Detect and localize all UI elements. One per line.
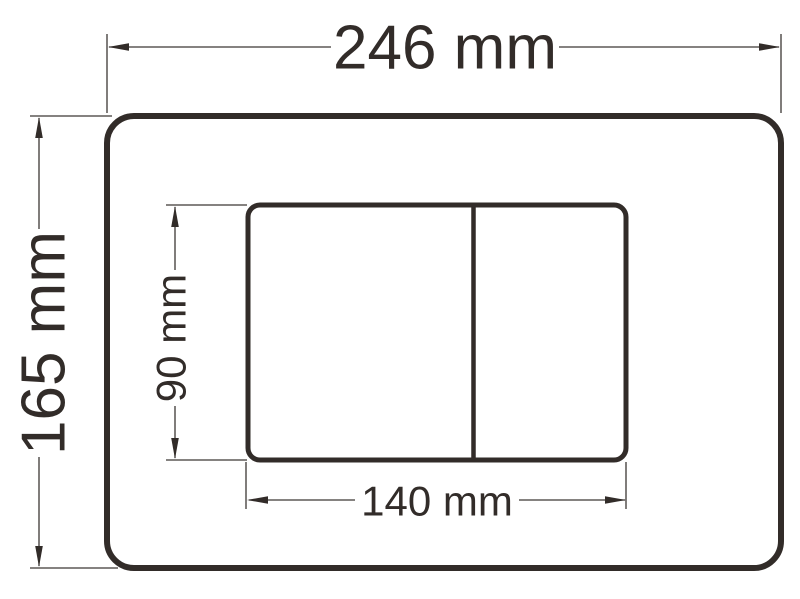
dimension-button-panel-width: 140 mm [246,462,626,525]
plate-height-label: 165 mm [10,231,79,455]
button-panel-outline [248,205,626,460]
dimension-plate-width: 246 mm [107,14,781,114]
arrowhead-up-icon [35,117,43,138]
technical-drawing: 246 mm 165 mm 90 mm [0,0,800,599]
arrowhead-left-icon [108,43,129,51]
dimension-button-panel-height: 90 mm [148,205,248,460]
plate-width-label: 246 mm [333,14,557,83]
arrowhead-down-icon [171,438,179,459]
button-panel-width-label: 140 mm [361,478,513,525]
drawing-canvas: 246 mm 165 mm 90 mm [0,0,800,599]
arrowhead-left-icon [247,496,268,504]
arrowhead-up-icon [171,206,179,227]
button-panel-height-label: 90 mm [148,274,195,402]
arrowhead-right-icon [759,43,780,51]
arrowhead-right-icon [605,496,626,504]
arrowhead-down-icon [35,546,43,567]
dimension-plate-height: 165 mm [10,116,119,568]
